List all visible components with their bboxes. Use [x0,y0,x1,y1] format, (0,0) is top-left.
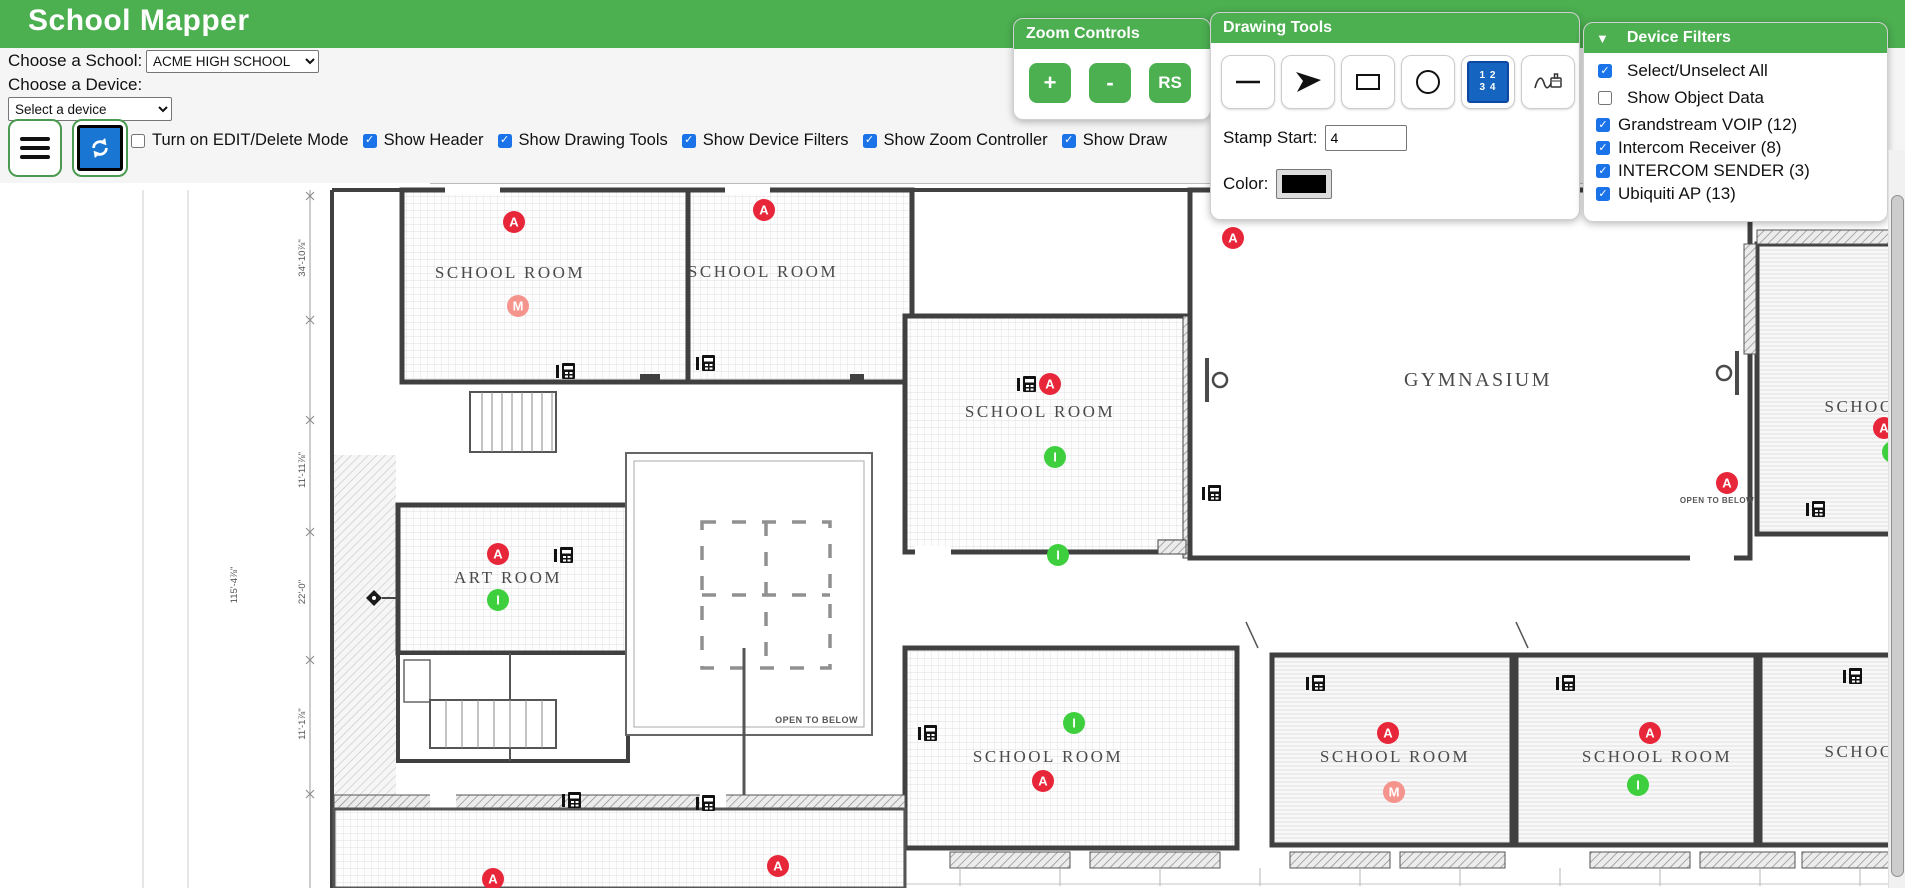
freehand-stamp-tool-button[interactable] [1521,55,1575,109]
arrow-tool-button[interactable] [1281,55,1335,109]
device-filters-title: Device Filters [1627,29,1731,47]
open-to-below-label: OPEN TO BELOW [1680,496,1754,505]
stamp-start-input[interactable] [1325,125,1407,151]
room-school-1 [402,190,688,382]
checkbox-checked[interactable] [498,134,512,148]
checkbox-checked[interactable] [363,134,377,148]
open-to-below-label: OPEN TO BELOW [775,715,858,725]
freehand-stamp-icon [1532,66,1564,98]
checkbox-checked[interactable] [863,134,877,148]
number-stamp-tool-button[interactable]: 1 2 3 4 [1461,55,1515,109]
room-label: SCHOOL ROOM [965,402,1115,421]
collapse-caret-icon[interactable]: ▼ [1596,31,1609,46]
option-show-header[interactable]: Show Header [363,131,484,150]
checkbox-checked[interactable] [682,134,696,148]
device-marker-M[interactable]: M [507,295,529,317]
option-label: Show Draw [1083,131,1167,150]
dimension-label: 11'-11⅞" [297,452,308,488]
option-label: Show Header [384,131,484,150]
zoom-controls-title: Zoom Controls [1014,19,1210,49]
device-marker-I[interactable]: I [1063,712,1085,734]
svg-text:A: A [509,215,519,230]
rectangle-tool-button[interactable] [1341,55,1395,109]
color-picker-swatch[interactable] [1276,169,1332,199]
option-label: Turn on EDIT/Delete Mode [152,131,349,150]
svg-text:M: M [1389,785,1400,800]
intercom-device-icon [1202,485,1221,501]
intercom-device-icon [1306,675,1325,691]
svg-text:A: A [1645,726,1655,741]
svg-text:I: I [496,593,500,608]
option-label: Show Device Filters [703,131,849,150]
device-marker-I[interactable]: I [1627,774,1649,796]
menu-button[interactable] [8,119,62,177]
room-school-3 [905,316,1185,552]
device-marker-A[interactable]: A [1032,770,1054,792]
svg-text:A: A [1383,726,1393,741]
device-marker-A[interactable]: A [1039,373,1061,395]
filter-label: Ubiquiti AP (13) [1618,184,1736,204]
color-label: Color: [1223,174,1268,194]
intercom-device-icon [1843,668,1862,684]
checkbox-checked[interactable] [1062,134,1076,148]
option-label: Show Drawing Tools [519,131,668,150]
option-row: Turn on EDIT/Delete ModeShow HeaderShow … [131,131,1167,150]
vertical-scrollbar[interactable] [1888,150,1905,888]
filter-label: Intercom Receiver (8) [1618,138,1781,158]
svg-text:A: A [1228,231,1238,246]
zoom-out-button[interactable]: - [1089,63,1131,103]
school-select-label: Choose a School: [8,51,142,71]
device-filters-panel: ▼ Device Filters Select/Unselect AllShow… [1583,22,1888,222]
svg-text:A: A [1045,377,1055,392]
device-filters-list: Select/Unselect AllShow Object DataGrand… [1584,53,1887,204]
room-label: SCHOOL ROOM [1582,747,1732,766]
room-label: ART ROOM [454,568,562,587]
zoom-reset-button[interactable]: RS [1149,63,1191,103]
device-select[interactable]: Select a device [8,97,172,121]
device-marker-A[interactable]: A [1716,472,1738,494]
refresh-icon [77,125,123,171]
device-marker-A[interactable]: A [1377,722,1399,744]
stamp-start-label: Stamp Start: [1223,128,1317,148]
bottom-exterior-wall [905,852,1889,886]
room-school-right [1757,244,1889,534]
stairs-top [470,392,556,452]
drawing-tools-panel: Drawing Tools 1 2 3 4 [1210,12,1580,220]
checkbox-checked[interactable] [1596,164,1610,178]
option-show-device-filters[interactable]: Show Device Filters [682,131,849,150]
filter-intercom-sender-3[interactable]: INTERCOM SENDER (3) [1596,161,1887,181]
intercom-device-icon [696,795,715,811]
checkbox-checked[interactable] [1598,64,1612,78]
room-label: SCHOOL ROOM [1320,747,1470,766]
filter-label: INTERCOM SENDER (3) [1618,161,1810,181]
room-label: SCHOOL ROOM [435,263,585,282]
device-marker-A[interactable]: A [1222,227,1244,249]
checkbox-checked[interactable] [1596,187,1610,201]
option-show-drawing-tools[interactable]: Show Drawing Tools [498,131,668,150]
filter-select-unselect-all[interactable]: Select/Unselect All [1596,61,1887,81]
filter-show-object-data[interactable]: Show Object Data [1596,88,1887,108]
circle-icon [1413,67,1443,97]
checkbox-unchecked[interactable] [1598,91,1612,105]
device-marker-A[interactable]: A [1639,722,1661,744]
zoom-in-button[interactable]: + [1029,63,1071,103]
filter-label: Grandstream VOIP (12) [1618,115,1797,135]
number-stamp-icon: 1 2 3 4 [1467,61,1509,103]
svg-text:A: A [759,203,769,218]
rectangle-icon [1353,67,1383,97]
svg-text:A: A [488,872,498,887]
device-marker-A[interactable]: A [487,543,509,565]
drawing-tools-title: Drawing Tools [1211,13,1579,43]
filter-label: Show Object Data [1627,88,1764,108]
room-label: SCHOOL [1824,742,1889,761]
intercom-device-icon [556,363,575,379]
refresh-button[interactable] [72,119,128,177]
scrollbar-thumb[interactable] [1891,195,1904,877]
room-school-2 [688,190,912,382]
filter-intercom-receiver-8[interactable]: Intercom Receiver (8) [1596,138,1887,158]
svg-text:A: A [1038,774,1048,789]
hamburger-icon [20,137,50,141]
school-select[interactable]: ACME HIGH SCHOOL [146,50,319,73]
svg-text:I: I [1072,716,1076,731]
room-label: SCHOOL ROOM [688,262,838,281]
intercom-device-icon [562,792,581,808]
circle-tool-button[interactable] [1401,55,1455,109]
device-marker-M[interactable]: M [1383,781,1405,803]
filter-grandstream-voip-12[interactable]: Grandstream VOIP (12) [1596,115,1887,135]
option-label: Show Zoom Controller [884,131,1048,150]
device-marker-I[interactable]: I [1047,544,1069,566]
device-marker-A[interactable]: A [753,199,775,221]
intercom-device-icon [1806,501,1825,517]
room-label: GYMNASIUM [1404,369,1552,391]
svg-text:M: M [513,299,524,314]
intercom-device-icon [918,725,937,741]
option-turn-on-edit-delete-mode[interactable]: Turn on EDIT/Delete Mode [131,131,349,150]
dimension-label: 115'-4⅞" [229,567,240,604]
filter-label: Select/Unselect All [1627,61,1768,81]
dimension-label: 11'-1⅞" [297,708,308,739]
intercom-device-icon [554,547,573,563]
atrium-open-to-below [626,453,872,735]
option-show-draw[interactable]: Show Draw [1062,131,1167,150]
color-swatch-fill [1282,175,1326,193]
app-window: School Mapper Choose a School: ACME HIGH… [0,0,1905,888]
device-marker-I[interactable]: I [1044,446,1066,468]
svg-text:I: I [1636,778,1640,793]
device-marker-I[interactable]: I [487,589,509,611]
dimension-label: 34'-10⅞" [297,239,308,276]
svg-text:I: I [1056,548,1060,563]
filter-ubiquiti-ap-13[interactable]: Ubiquiti AP (13) [1596,184,1887,204]
room-label: SCHOOL [1824,397,1889,416]
device-select-label: Choose a Device: [8,75,142,95]
zoom-controls-panel: Zoom Controls + - RS [1013,18,1211,120]
checkbox-checked[interactable] [1596,141,1610,155]
line-icon [1233,67,1263,97]
arrow-icon [1293,67,1323,97]
floor-plan-map[interactable]: SCHOOL ROOMSCHOOL ROOMSCHOOL ROOMGYMNASI… [0,183,1889,888]
floor-plan-svg: SCHOOL ROOMSCHOOL ROOMSCHOOL ROOMGYMNASI… [0,183,1889,888]
checkbox-checked[interactable] [1596,118,1610,132]
intercom-device-icon [1556,675,1575,691]
checkbox-unchecked[interactable] [131,134,145,148]
dimension-label: 22'-0" [297,580,308,604]
device-marker-A[interactable]: A [503,211,525,233]
intercom-device-icon [696,355,715,371]
svg-text:I: I [1053,450,1057,465]
option-show-zoom-controller[interactable]: Show Zoom Controller [863,131,1048,150]
svg-text:A: A [1722,476,1732,491]
intercom-device-icon [1017,376,1036,392]
device-marker-A[interactable]: A [767,855,789,877]
room-label: SCHOOL ROOM [973,747,1123,766]
line-tool-button[interactable] [1221,55,1275,109]
svg-text:A: A [773,859,783,874]
svg-text:A: A [493,547,503,562]
